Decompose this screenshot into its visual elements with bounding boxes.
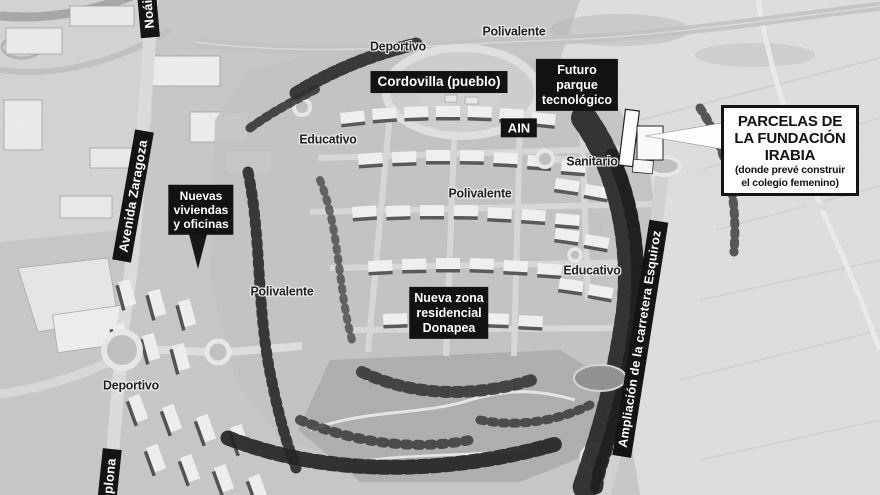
callout-line: y oficinas xyxy=(173,217,228,231)
callout-line: viviendas xyxy=(173,203,228,217)
callout-line: parque xyxy=(542,78,612,93)
ribbon-noain: Noáin xyxy=(136,0,160,38)
zone-label-polivalente-left: Polivalente xyxy=(250,285,313,298)
irabia-subtitle-line: el colegio femenino) xyxy=(726,177,854,190)
callout-futuro-parque: Futuro parque tecnológico xyxy=(536,59,618,111)
fundacion-irabia-box: PARCELAS DE LA FUNDACIÓN IRABIA (donde p… xyxy=(721,105,859,196)
irabia-title-line: LA FUNDACIÓN xyxy=(726,130,854,147)
callout-line: Donapea xyxy=(414,320,483,335)
callout-ain: AIN xyxy=(501,118,537,137)
aerial-map-infographic: Noáin Avenida Zaragoza Ampliación de la … xyxy=(0,0,880,495)
zone-label-sanitario: Sanitario xyxy=(566,155,617,168)
zone-label-educativo-right: Educativo xyxy=(563,264,620,277)
irabia-title-line: PARCELAS DE xyxy=(726,113,854,130)
zone-label-deportivo-top: Deportivo xyxy=(370,40,426,53)
callout-line: Nueva zona xyxy=(414,291,483,306)
callout-line: tecnológico xyxy=(542,92,612,107)
callout-line: residencial xyxy=(414,306,483,321)
callout-nuevas-viviendas: Nuevas viviendas y oficinas xyxy=(168,185,233,235)
zone-label-polivalente-center: Polivalente xyxy=(448,187,511,200)
zone-label-polivalente-top: Polivalente xyxy=(482,25,545,38)
callout-line: Nuevas xyxy=(173,189,228,203)
callout-cordovilla: Cordovilla (pueblo) xyxy=(371,71,508,93)
irabia-subtitle-line: (donde prevé construir xyxy=(726,164,854,177)
callout-donapea: Nueva zona residencial Donapea xyxy=(409,287,488,339)
zone-label-deportivo-bottom: Deportivo xyxy=(103,379,159,392)
zone-label-educativo-left: Educativo xyxy=(299,133,356,146)
callout-line: Futuro xyxy=(542,63,612,78)
irabia-title-line: IRABIA xyxy=(726,147,854,164)
